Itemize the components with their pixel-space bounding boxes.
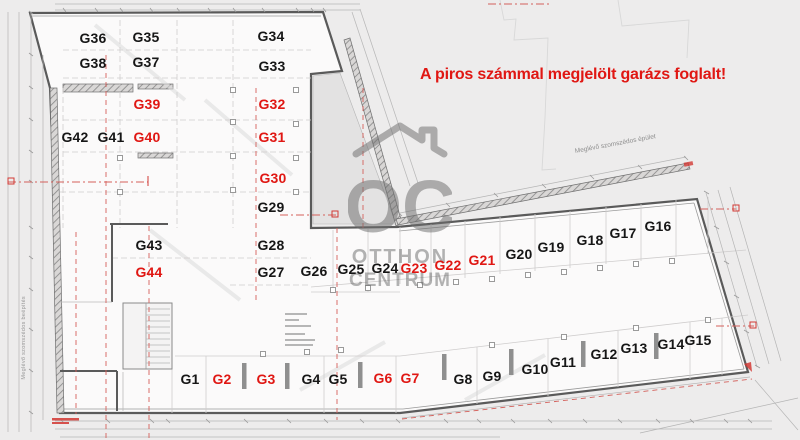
- garage-label-g13: G13: [620, 340, 647, 356]
- garage-label-g23: G23: [400, 260, 427, 276]
- garage-label-g8: G8: [453, 371, 472, 387]
- garage-label-g22: G22: [434, 257, 461, 273]
- garage-label-g36: G36: [79, 30, 106, 46]
- garage-label-g39: G39: [133, 96, 160, 112]
- garage-label-g7: G7: [400, 370, 419, 386]
- garage-label-g29: G29: [257, 199, 284, 215]
- garage-label-g33: G33: [258, 58, 285, 74]
- garage-label-g5: G5: [328, 371, 347, 387]
- garage-label-g40: G40: [133, 129, 160, 145]
- garage-label-g4: G4: [301, 371, 320, 387]
- garage-label-g20: G20: [505, 246, 532, 262]
- garage-label-g9: G9: [482, 368, 501, 384]
- neighbor-building-zone: [313, 73, 396, 224]
- garage-label-g21: G21: [468, 252, 495, 268]
- garage-label-g43: G43: [135, 237, 162, 253]
- garage-label-g3: G3: [256, 371, 275, 387]
- garage-label-g37: G37: [132, 54, 159, 70]
- garage-label-g28: G28: [257, 237, 284, 253]
- garage-label-g34: G34: [257, 28, 284, 44]
- floor-plan-canvas: OC OTTHON CENTRUM A piros számmal megjel…: [0, 0, 800, 440]
- garage-label-g42: G42: [61, 129, 88, 145]
- garage-label-g16: G16: [644, 218, 671, 234]
- garage-label-g17: G17: [609, 225, 636, 241]
- garage-label-g12: G12: [590, 346, 617, 362]
- garage-label-g30: G30: [259, 170, 286, 186]
- garage-label-g14: G14: [657, 336, 684, 352]
- garage-label-g2: G2: [212, 371, 231, 387]
- garage-label-g41: G41: [97, 129, 124, 145]
- garage-label-g26: G26: [300, 263, 327, 279]
- neighbor-side-label: Meglévő szomszédos beépítés: [21, 296, 27, 380]
- garage-label-g19: G19: [537, 239, 564, 255]
- garage-label-g18: G18: [576, 232, 603, 248]
- garage-label-g27: G27: [257, 264, 284, 280]
- garage-label-g6: G6: [373, 370, 392, 386]
- garage-label-g1: G1: [180, 371, 199, 387]
- garage-label-g25: G25: [337, 261, 364, 277]
- garage-label-g10: G10: [521, 361, 548, 377]
- garage-label-g15: G15: [684, 332, 711, 348]
- garage-label-g11: G11: [550, 354, 576, 370]
- garage-label-g32: G32: [258, 96, 285, 112]
- garage-label-g24: G24: [371, 260, 398, 276]
- garage-label-g35: G35: [132, 29, 159, 45]
- garage-label-g31: G31: [258, 129, 285, 145]
- garage-label-g44: G44: [135, 264, 162, 280]
- occupied-notice: A piros számmal megjelölt garázs foglalt…: [420, 66, 760, 84]
- garage-label-g38: G38: [79, 55, 106, 71]
